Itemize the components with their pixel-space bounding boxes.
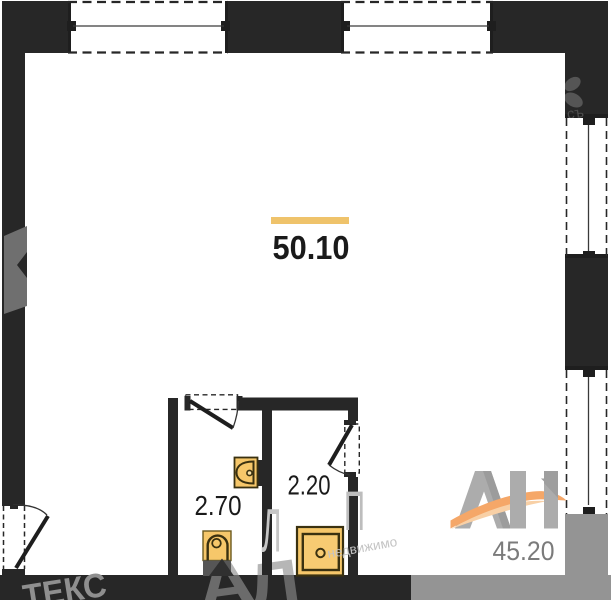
svg-text:2.70: 2.70 [195,490,242,521]
svg-text:50.10: 50.10 [273,229,350,266]
svg-text:Л: Л [261,497,281,565]
svg-text:2.20: 2.20 [288,470,331,501]
svg-text:П: П [344,481,365,542]
svg-text:45.20: 45.20 [493,536,555,566]
